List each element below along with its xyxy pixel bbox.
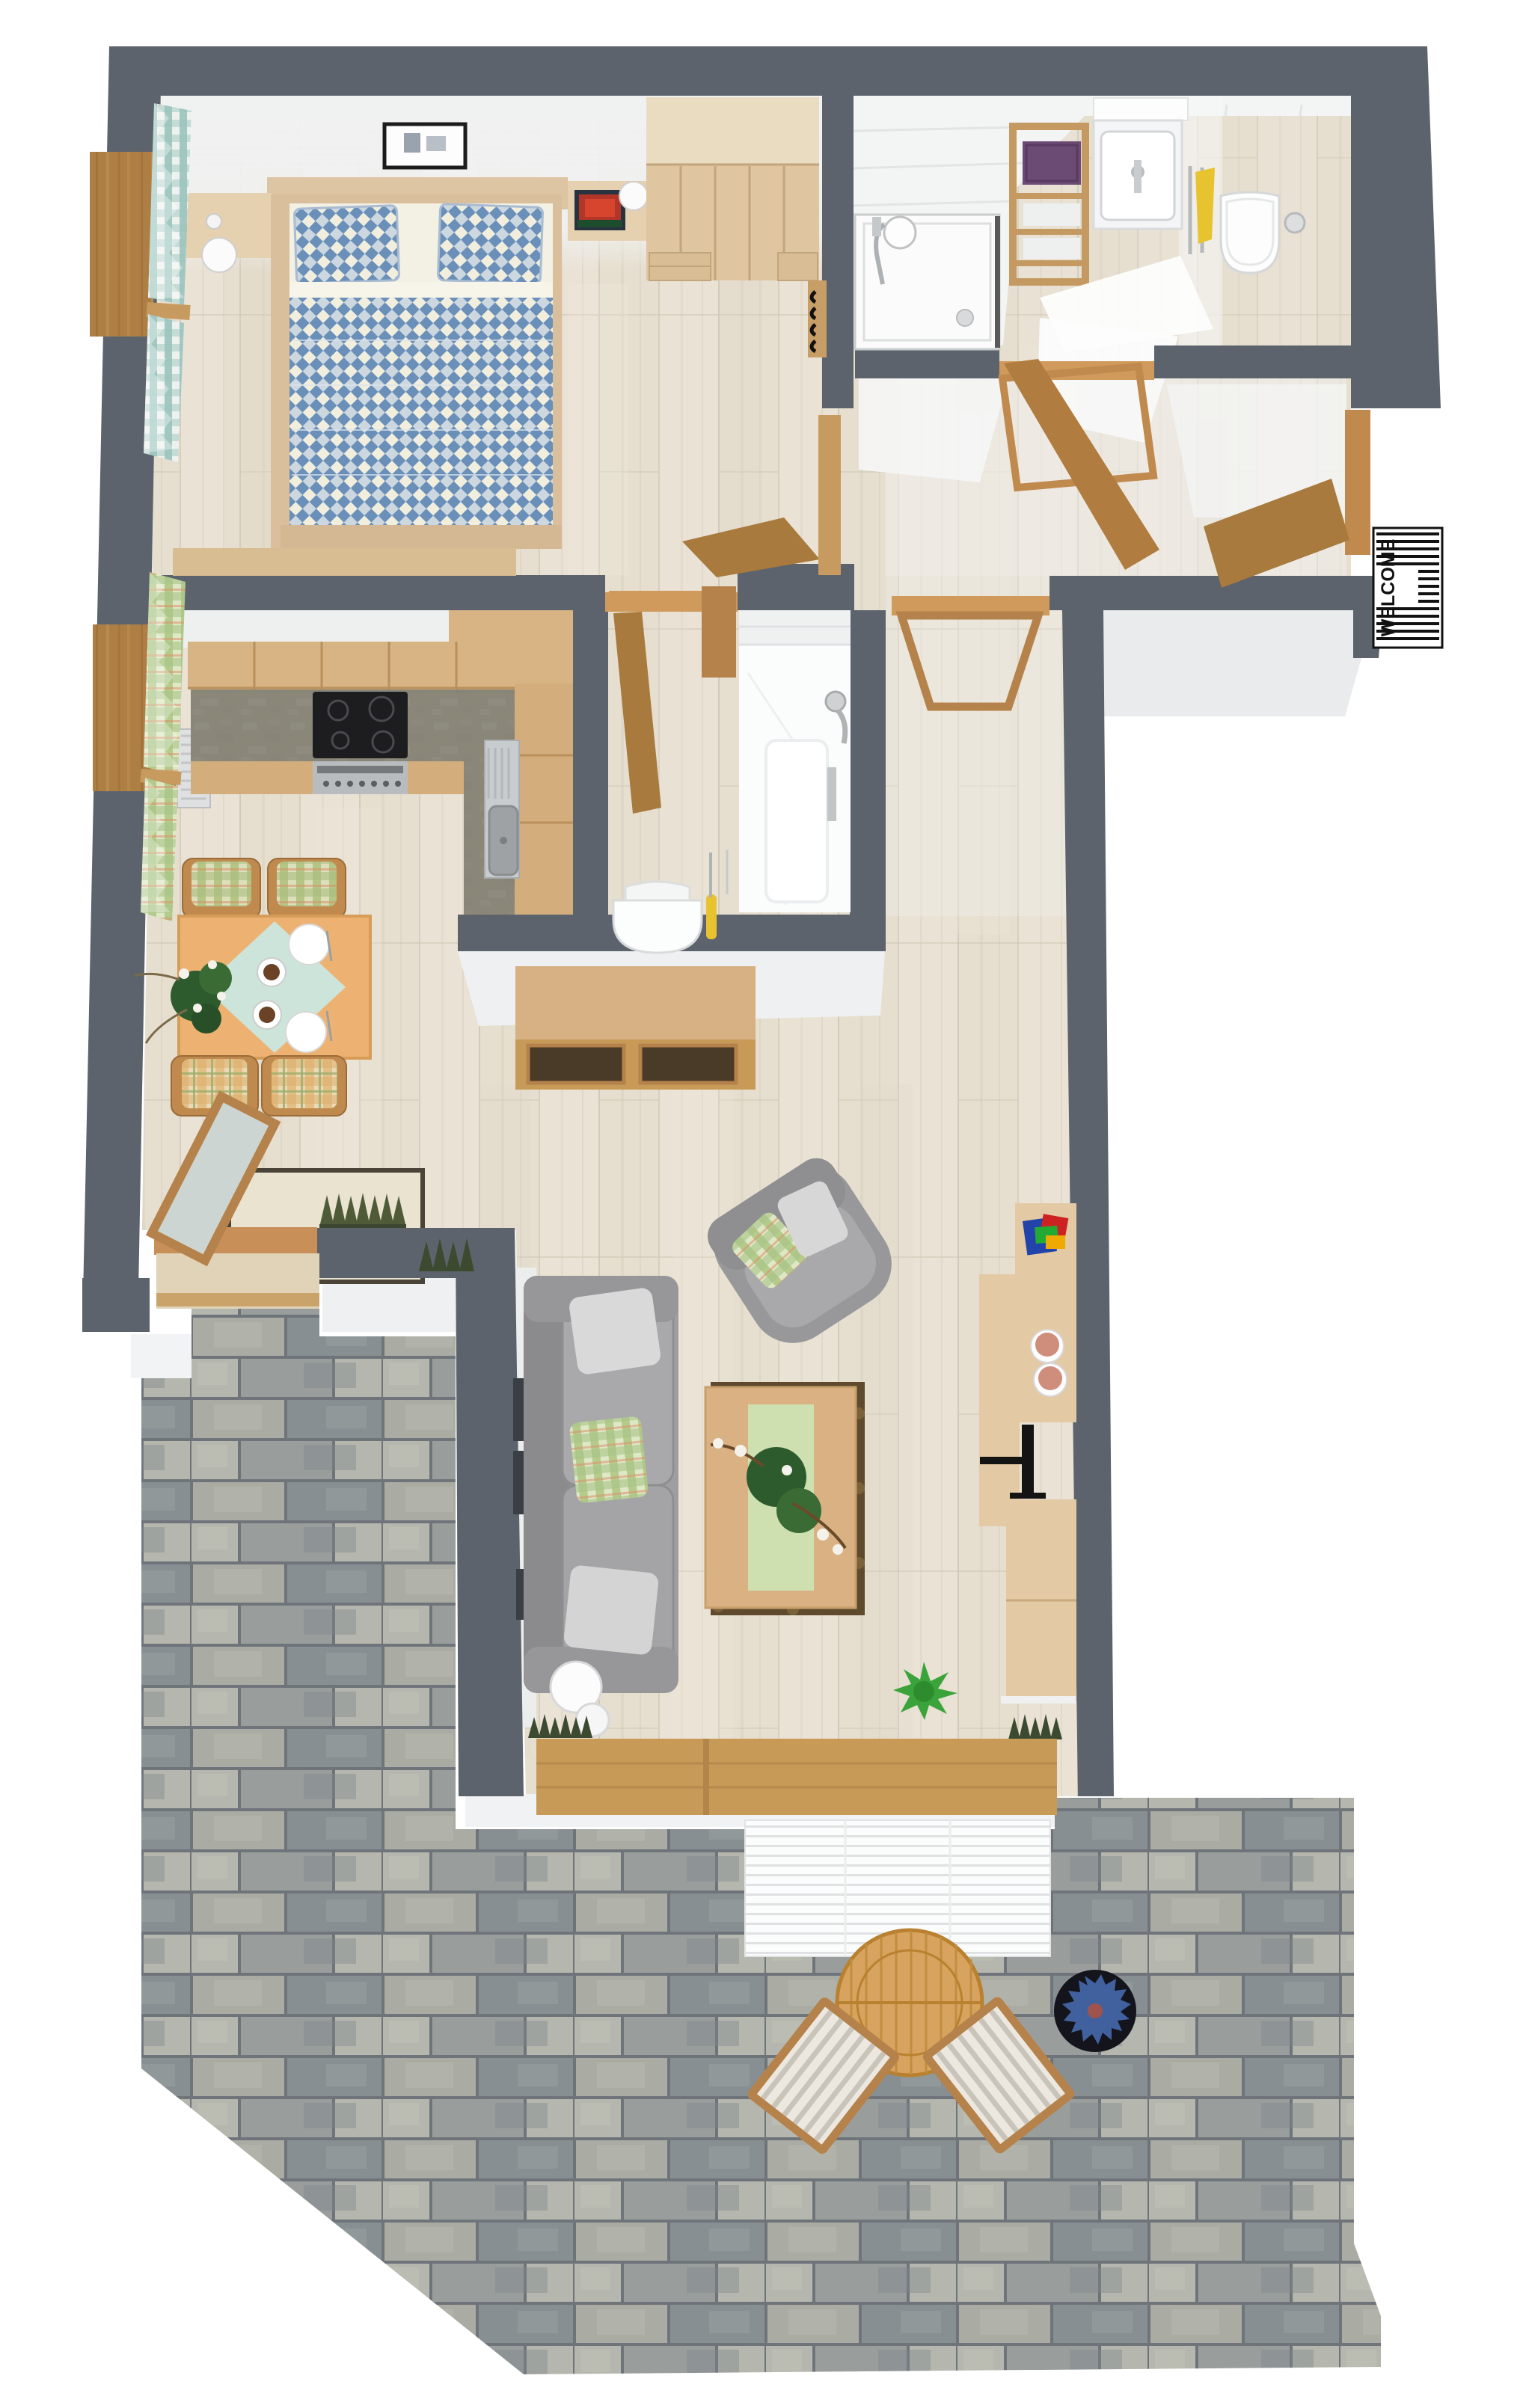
svg-text:WELCOME: WELCOME [1378,539,1399,637]
